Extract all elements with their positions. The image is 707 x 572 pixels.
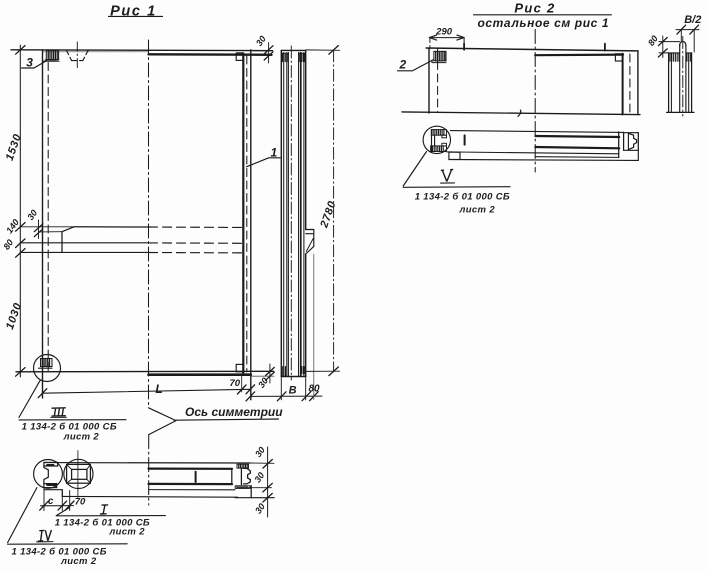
svg-text:2780: 2780 xyxy=(318,199,339,230)
svg-text:L: L xyxy=(155,382,162,396)
svg-text:30: 30 xyxy=(25,208,39,222)
svg-text:70: 70 xyxy=(75,497,86,508)
svg-text:30: 30 xyxy=(253,445,267,459)
svg-text:80: 80 xyxy=(1,238,15,252)
svg-text:70: 70 xyxy=(230,378,241,389)
svg-text:Рис 1: Рис 1 xyxy=(110,4,157,20)
svg-text:В: В xyxy=(289,385,297,397)
svg-text:1030: 1030 xyxy=(4,301,24,331)
svg-text:лист 2: лист 2 xyxy=(60,556,97,567)
svg-text:1: 1 xyxy=(271,146,278,160)
svg-text:лист 2: лист 2 xyxy=(108,527,145,538)
svg-text:лист 2: лист 2 xyxy=(459,205,496,216)
svg-text:лист 2: лист 2 xyxy=(63,432,100,443)
svg-text:остальное см рис 1: остальное см рис 1 xyxy=(477,16,609,30)
svg-text:80: 80 xyxy=(308,384,320,395)
svg-text:30: 30 xyxy=(254,34,268,48)
svg-text:В/2: В/2 xyxy=(684,14,701,26)
svg-text:290: 290 xyxy=(435,26,453,37)
svg-text:30: 30 xyxy=(252,470,266,484)
svg-text:Рис 2: Рис 2 xyxy=(514,1,555,16)
svg-text:3: 3 xyxy=(26,56,33,70)
svg-text:Ось симметрии: Ось симметрии xyxy=(185,405,283,419)
svg-text:1 134-2 б 01 000 СБ: 1 134-2 б 01 000 СБ xyxy=(415,192,510,203)
svg-text:1530: 1530 xyxy=(4,132,24,162)
svg-text:140: 140 xyxy=(4,217,21,235)
svg-text:2: 2 xyxy=(399,58,407,72)
svg-text:30: 30 xyxy=(253,502,267,516)
svg-text:с: с xyxy=(48,496,54,507)
